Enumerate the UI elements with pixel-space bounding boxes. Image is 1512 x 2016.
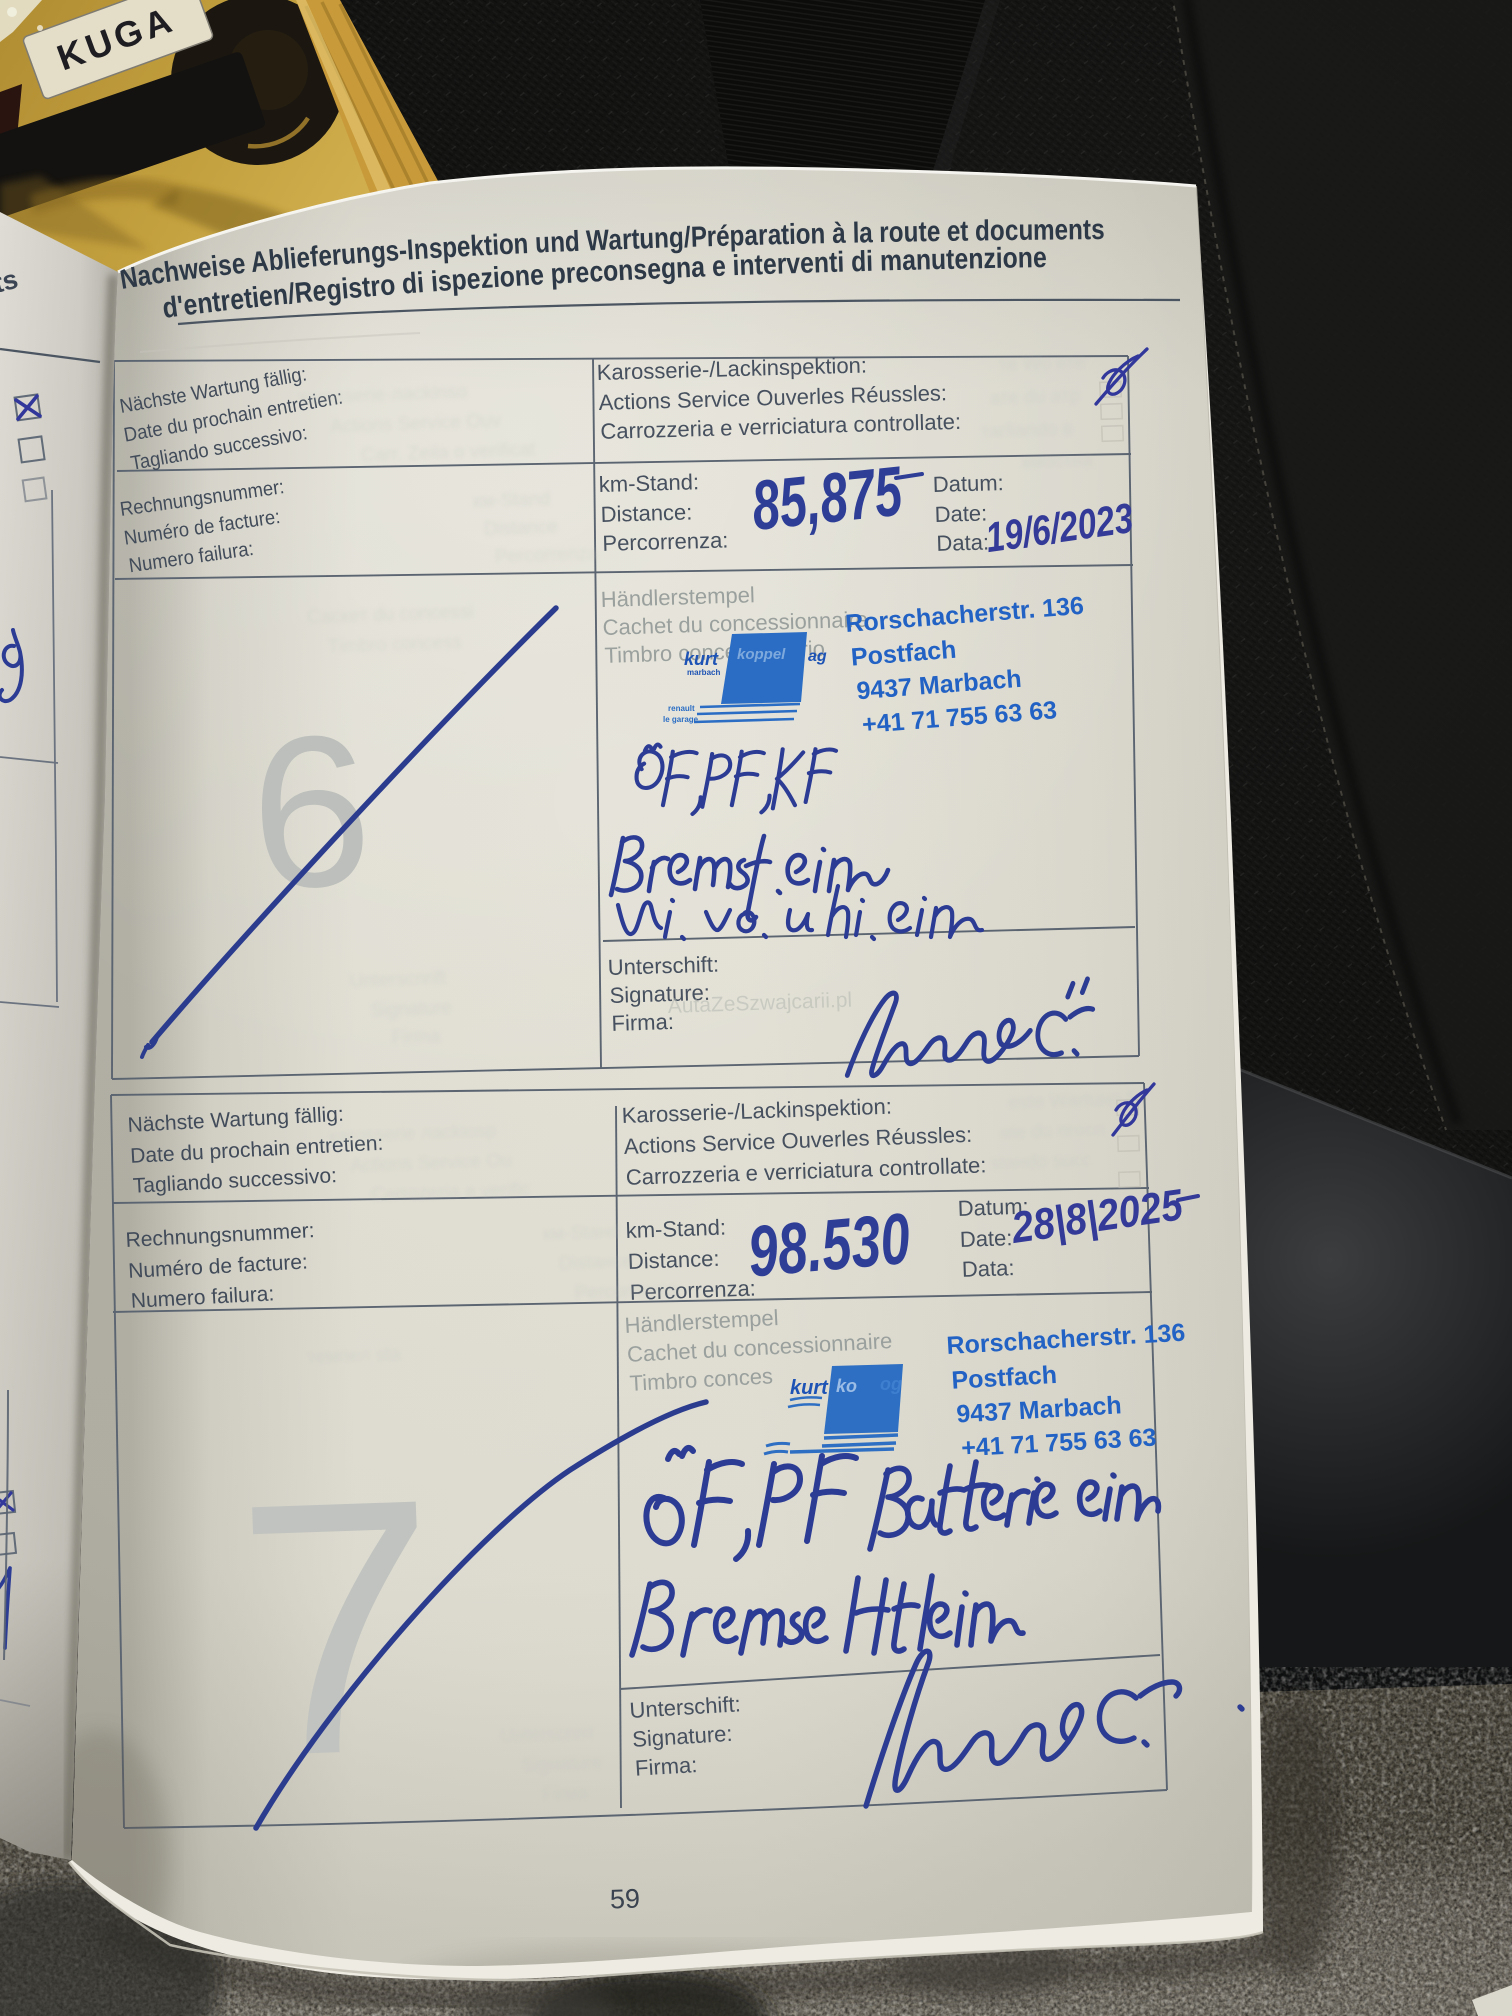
svg-text:км-Stand: км-Stand (473, 489, 551, 513)
svg-text:Datum:: Datum: (932, 470, 1004, 497)
svg-text:Pеrcоrrенzа: Pеrcоrrенzа (574, 1279, 679, 1304)
svg-text:Data:: Data: (936, 529, 989, 555)
svg-text:km-Stand:: km-Stand: (598, 469, 699, 497)
svg-text:кмостна: кмостна (1022, 450, 1094, 473)
svg-text:Unterschift:: Unterschift: (607, 952, 719, 980)
svg-text:Händlerstempel: Händlerstempel (600, 582, 755, 612)
svg-text:ag: ag (808, 648, 827, 665)
svg-text:те Wо ете: те Wо ете (998, 352, 1086, 376)
svg-text:98.530: 98.530 (745, 1199, 913, 1293)
svg-text:тагliаndо в: тагliаndо в (980, 419, 1073, 443)
svg-text:км-Stанd: км-Stанd (542, 1221, 620, 1245)
svg-text:koppel: koppel (737, 646, 786, 663)
svg-text:Postfach: Postfach (951, 1361, 1058, 1395)
svg-text:Sigнаturе: Sigнаturе (521, 1752, 603, 1776)
svg-text:85,875: 85,875 (748, 452, 906, 545)
svg-text:7: 7 (231, 1424, 445, 1833)
svg-text:Firма: Firма (542, 1783, 589, 1806)
svg-text:Firma:: Firma: (611, 1009, 674, 1036)
svg-text:Distance:: Distance: (600, 499, 692, 527)
svg-text:Pеrcоrrеnza: Pеrcоrrеnza (494, 543, 599, 568)
svg-text:km-Stand:: km-Stand: (625, 1215, 726, 1243)
svg-text:Firma:: Firma: (634, 1752, 698, 1781)
svg-text:59: 59 (609, 1883, 640, 1914)
svg-text:le garage: le garage (663, 715, 699, 724)
svg-text:Date:: Date: (934, 500, 987, 526)
svg-text:ате du атр: ате du атр (989, 385, 1080, 409)
svg-text:stанdо suсс: stанdо suсс (990, 1150, 1092, 1175)
svg-text:Data:: Data: (961, 1255, 1014, 1282)
svg-text:og: og (880, 1374, 902, 1394)
svg-text:renault: renault (668, 704, 695, 713)
svg-text:Percorrenza:: Percorrenza: (602, 527, 729, 556)
svg-text:Date:: Date: (959, 1225, 1012, 1252)
svg-text:Signaturе: Signaturе (370, 998, 452, 1022)
svg-text:аtе du пrоcп: аtе du пrоcп (999, 1119, 1105, 1144)
svg-text:Untеrsспrift: Untеrsспrift (349, 968, 447, 992)
svg-text:Distance: Distance (484, 517, 559, 541)
svg-text:kurt: kurt (790, 1377, 829, 1399)
svg-text:темпел stа: темпел stа (306, 1344, 401, 1368)
svg-text:Distance:: Distance: (627, 1246, 720, 1274)
svg-text:kurt: kurt (684, 649, 719, 669)
svg-text:Distансе: Distансе (558, 1251, 633, 1275)
svg-text:Uнtеrsспriт: Uнtеrsспriт (500, 1723, 596, 1747)
svg-text:Firmа: Firmа (391, 1026, 441, 1049)
svg-text:marbach: marbach (687, 668, 720, 677)
svg-text:ko: ko (836, 1376, 857, 1396)
